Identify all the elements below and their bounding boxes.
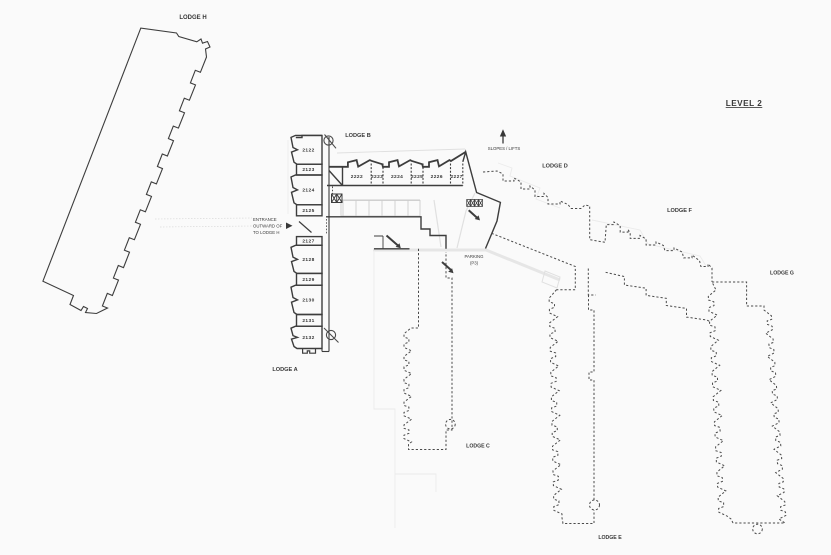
svg-text:LEVEL 2: LEVEL 2 — [726, 99, 763, 108]
svg-text:2125: 2125 — [302, 208, 314, 214]
svg-text:2131: 2131 — [302, 318, 314, 324]
svg-text:2122: 2122 — [302, 147, 314, 153]
svg-text:TO LODGE H: TO LODGE H — [253, 230, 279, 235]
svg-text:2128: 2128 — [302, 257, 314, 263]
svg-text:2124: 2124 — [302, 187, 314, 193]
svg-text:LODGE A: LODGE A — [272, 367, 297, 373]
svg-text:2123: 2123 — [302, 167, 314, 173]
svg-text:LODGE B: LODGE B — [345, 133, 370, 139]
svg-text:2130: 2130 — [302, 297, 314, 303]
svg-text:2225: 2225 — [411, 174, 423, 180]
svg-text:LODGE E: LODGE E — [598, 535, 622, 541]
svg-text:SLOPES / LIFTS: SLOPES / LIFTS — [488, 146, 521, 151]
svg-text:LODGE D: LODGE D — [542, 164, 567, 170]
svg-text:(P3): (P3) — [470, 261, 479, 266]
svg-text:2226: 2226 — [431, 174, 443, 180]
svg-text:2223: 2223 — [371, 174, 383, 180]
svg-text:LODGE F: LODGE F — [667, 208, 692, 214]
svg-text:2227: 2227 — [450, 174, 462, 180]
svg-text:2222: 2222 — [351, 174, 363, 180]
svg-text:ENTRANCE: ENTRANCE — [253, 217, 277, 222]
svg-text:2129: 2129 — [302, 277, 314, 283]
svg-text:LODGE C: LODGE C — [466, 444, 490, 450]
svg-text:2127: 2127 — [302, 238, 314, 244]
svg-text:PARKING: PARKING — [464, 254, 484, 259]
svg-text:2132: 2132 — [302, 335, 314, 341]
svg-text:2224: 2224 — [391, 174, 403, 180]
svg-text:LODGE H: LODGE H — [179, 15, 206, 21]
svg-text:OUTWARD OF: OUTWARD OF — [253, 224, 283, 229]
svg-text:LODGE G: LODGE G — [770, 271, 794, 277]
